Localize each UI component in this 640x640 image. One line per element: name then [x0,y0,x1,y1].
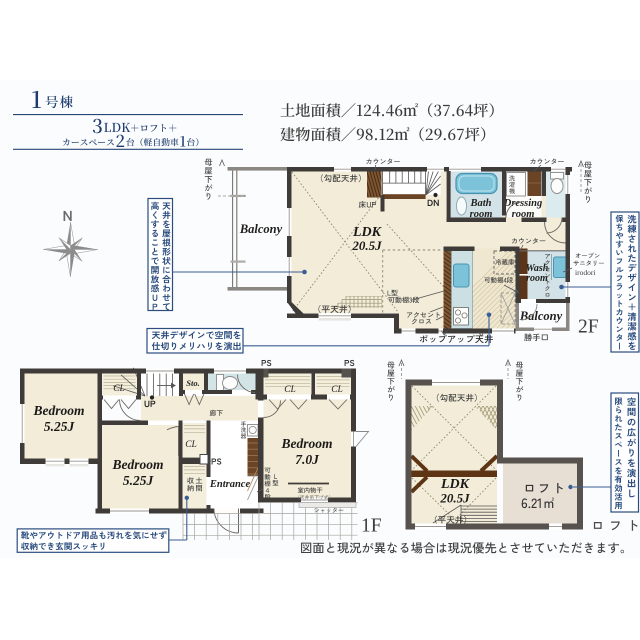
svg-text:1F: 1F [361,516,382,537]
svg-text:Sto.: Sto. [186,378,199,388]
svg-text:Balcony: Balcony [519,309,563,323]
svg-text:CL: CL [284,385,296,395]
svg-text:Bedroom: Bedroom [111,457,163,472]
svg-text:irodori: irodori [575,268,595,277]
svg-text:Balcony: Balcony [239,222,283,236]
svg-text:Bedroom: Bedroom [32,403,84,418]
svg-text:CL: CL [185,440,197,450]
svg-text:CL: CL [331,385,343,395]
svg-text:20.5J: 20.5J [439,491,470,506]
svg-text:Dressing: Dressing [503,198,543,209]
svg-text:Bedroom: Bedroom [280,436,332,451]
svg-text:20.5J: 20.5J [351,238,382,253]
svg-text:5.25J: 5.25J [123,473,155,488]
svg-text:room: room [526,273,548,284]
svg-text:2F: 2F [578,317,599,338]
svg-text:5.25J: 5.25J [44,419,76,434]
svg-text:7.0J: 7.0J [295,452,320,467]
svg-text:Entrance: Entrance [209,479,251,490]
svg-text:CL: CL [113,384,125,394]
svg-text:Bath: Bath [469,198,491,209]
